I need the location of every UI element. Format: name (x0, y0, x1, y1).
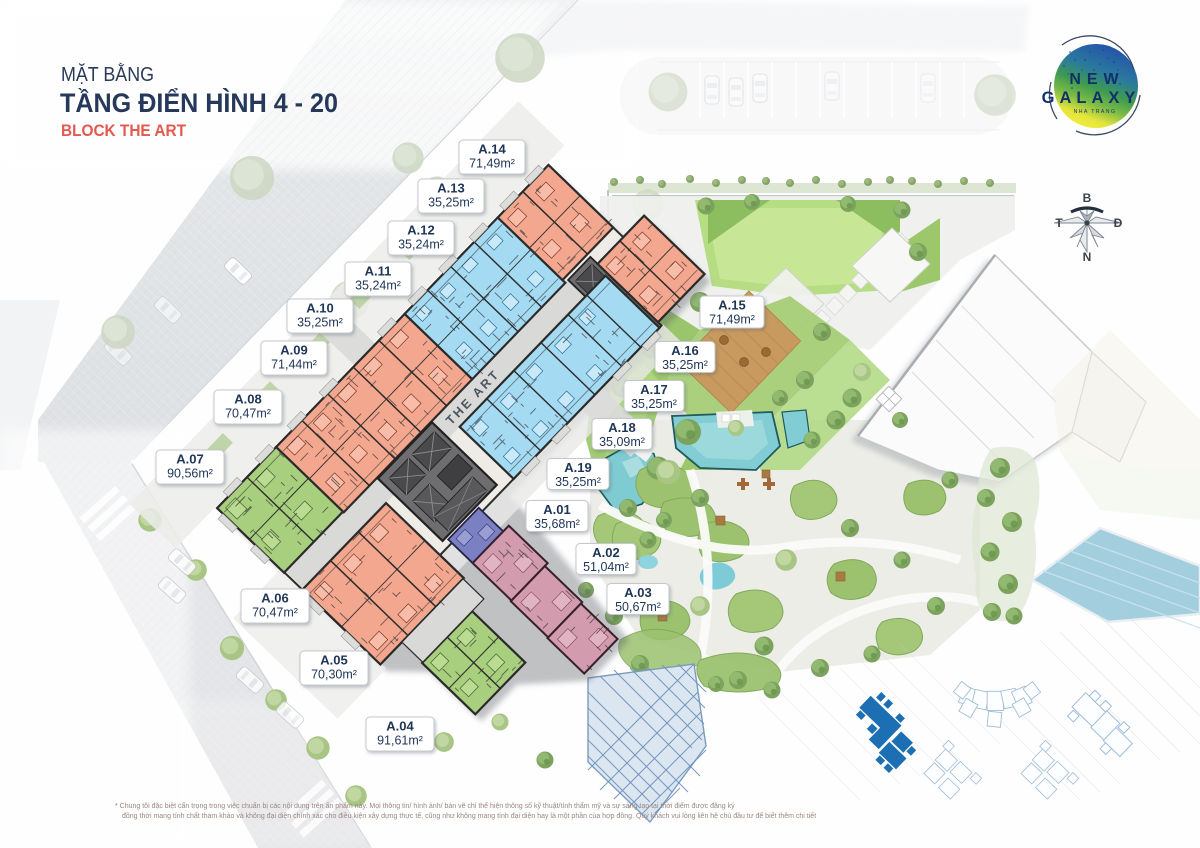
svg-text:90,56m²: 90,56m² (167, 467, 213, 481)
svg-text:70,30m²: 70,30m² (311, 668, 357, 682)
svg-text:A.10: A.10 (306, 301, 333, 316)
svg-text:MẶT BẰNG: MẶT BẰNG (61, 62, 154, 86)
svg-text:A.17: A.17 (640, 382, 667, 397)
svg-text:71,49m²: 71,49m² (469, 157, 515, 171)
svg-text:A.02: A.02 (592, 545, 619, 560)
svg-text:51,04m²: 51,04m² (583, 560, 629, 574)
svg-text:A.16: A.16 (671, 343, 698, 358)
svg-text:35,25m²: 35,25m² (555, 475, 601, 489)
svg-text:A.01: A.01 (543, 502, 570, 517)
svg-text:A.04: A.04 (386, 719, 414, 734)
svg-text:Đ: Đ (1114, 216, 1123, 230)
svg-text:A.09: A.09 (280, 343, 307, 358)
svg-text:A.18: A.18 (608, 420, 635, 435)
svg-text:35,68m²: 35,68m² (534, 517, 580, 531)
svg-text:A.06: A.06 (261, 591, 288, 606)
svg-text:70,47m²: 70,47m² (225, 407, 271, 421)
svg-text:35,24m²: 35,24m² (355, 279, 401, 293)
svg-text:71,44m²: 71,44m² (271, 358, 317, 372)
svg-text:* Chung tôi đặc biệt cẩn trọng: * Chung tôi đặc biệt cẩn trọng trong việ… (115, 801, 735, 810)
svg-text:91,61m²: 91,61m² (377, 734, 423, 748)
svg-text:NEW: NEW (1069, 71, 1124, 88)
svg-text:70,47m²: 70,47m² (252, 606, 298, 620)
svg-text:71,49m²: 71,49m² (709, 313, 755, 327)
svg-text:B: B (1083, 191, 1092, 205)
svg-text:35,09m²: 35,09m² (599, 435, 645, 449)
svg-text:A.11: A.11 (365, 264, 392, 279)
svg-text:BLOCK THE ART: BLOCK THE ART (61, 122, 186, 140)
svg-text:A.19: A.19 (564, 460, 591, 475)
svg-text:A.13: A.13 (437, 181, 464, 196)
svg-text:35,25m²: 35,25m² (428, 196, 474, 210)
svg-text:A.07: A.07 (176, 452, 203, 467)
svg-text:A.03: A.03 (624, 585, 651, 600)
svg-text:T: T (1055, 216, 1063, 230)
svg-text:A.12: A.12 (407, 223, 434, 238)
svg-text:35,25m²: 35,25m² (662, 358, 708, 372)
svg-text:50,67m²: 50,67m² (615, 600, 661, 614)
svg-text:35,25m²: 35,25m² (297, 316, 343, 330)
svg-text:A.15: A.15 (718, 298, 745, 313)
svg-text:GALAXY: GALAXY (1042, 89, 1141, 107)
svg-text:TẦNG ĐIỂN HÌNH 4 - 20: TẦNG ĐIỂN HÌNH 4 - 20 (60, 87, 338, 118)
svg-text:đồng thời mang tính chất tham: đồng thời mang tính chất tham khảo và kh… (122, 811, 816, 820)
svg-text:A.14: A.14 (478, 142, 506, 157)
svg-text:A.08: A.08 (234, 392, 261, 407)
svg-text:NHA TRANG: NHA TRANG (1074, 109, 1117, 115)
svg-text:35,24m²: 35,24m² (398, 238, 444, 252)
svg-text:A.05: A.05 (320, 653, 347, 668)
svg-text:N: N (1083, 250, 1092, 264)
svg-text:35,25m²: 35,25m² (631, 397, 677, 411)
